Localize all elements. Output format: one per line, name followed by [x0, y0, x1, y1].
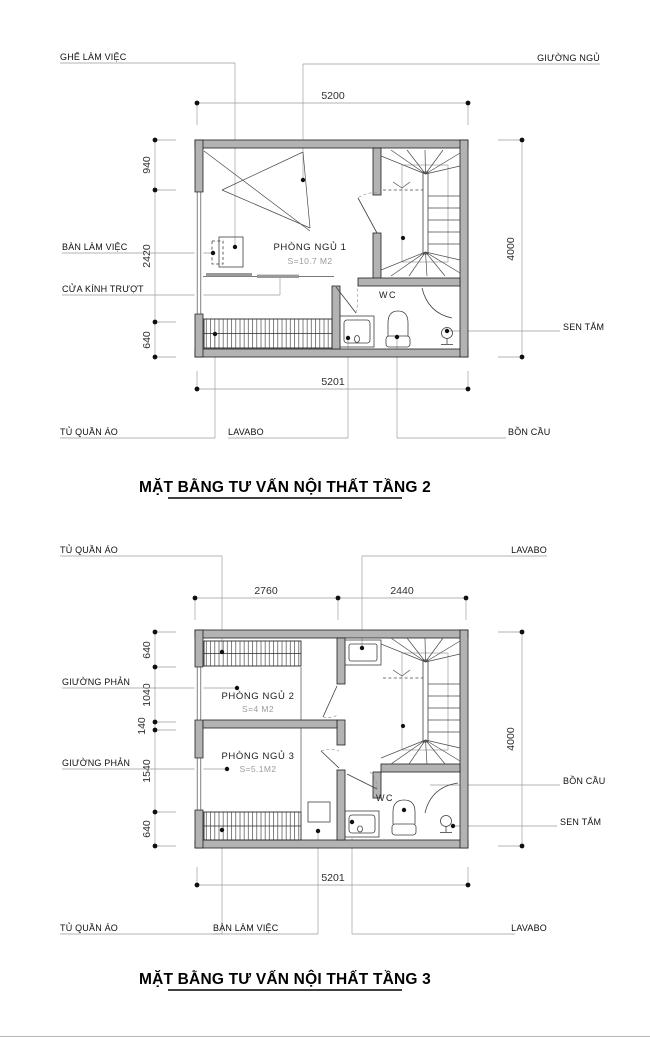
drawing-sheet: GHẾ LÀM VIỆC GIƯỜNG NGỦ 5200 940 2420 64… — [0, 0, 650, 1037]
plan2-dim-640: 640 — [141, 331, 153, 349]
plan3-shower — [440, 816, 452, 833]
plan2-dim-bottom: 5201 — [321, 376, 345, 388]
plan3-title: MẶT BẰNG TƯ VẤN NỘI THẤT TẦNG 3 — [139, 970, 431, 988]
plan3-desk — [308, 802, 330, 822]
plan3-stair — [381, 638, 460, 764]
plan3-window-lower — [195, 758, 204, 810]
plan2-title: MẶT BẰNG TƯ VẤN NỘI THẤT TẦNG 2 — [139, 478, 431, 496]
plan3-title-block: MẶT BẰNG TƯ VẤN NỘI THẤT TẦNG 3 — [139, 970, 431, 990]
plan2-stair-door — [358, 193, 377, 233]
plan3-wc-label: WC — [376, 793, 394, 803]
plan2-sliding-door-label: CỬA KÍNH TRƯỢT — [62, 283, 144, 294]
plan2-dim-top: 5200 — [321, 90, 345, 102]
plan3-bedroom2-name: PHÒNG NGỦ 2 — [221, 690, 294, 702]
plan2-wardrobe-label: TỦ QUẦN ÁO — [60, 426, 118, 437]
plan3-toilet — [392, 800, 416, 835]
plan2-sink-label: LAVABO — [228, 427, 264, 437]
plan3-dim-140: 140 — [136, 717, 148, 735]
plan3-dim-1040: 1040 — [141, 683, 153, 707]
plan3-wc-door — [347, 772, 377, 789]
plan3-bedroom3-name: PHÒNG NGỦ 3 — [221, 750, 294, 762]
plan2-desk-label: BÀN LÀM VIỆC — [62, 242, 128, 252]
plan3-annotations: TỦ QUẦN ÁO LAVABO 2760 2440 640 1040 140… — [60, 544, 605, 934]
plan2-lavabo — [340, 316, 374, 347]
plan3-lavabo-bottom — [345, 811, 379, 837]
plan3-bedroom2-area: S=4 M2 — [242, 704, 274, 714]
plan3-shower-label: SEN TẮM — [560, 817, 601, 827]
plan3-wardrobe-top-label: TỦ QUẦN ÁO — [60, 544, 118, 555]
plan3-window-upper — [195, 667, 204, 720]
plan2-desk — [212, 237, 243, 267]
plan2-wc-label: WC — [379, 290, 397, 300]
plan3-wc-swing-door — [425, 783, 458, 813]
plan3-wardrobe-top — [204, 641, 301, 666]
plan3-bed-lower-label: GIƯỜNG PHẢN — [62, 757, 130, 768]
plan2-dim-right: 4000 — [505, 237, 517, 261]
plan2-shower-label: SEN TẮM — [563, 322, 604, 332]
plan2-toilet-label: BỒN CẦU — [508, 426, 550, 437]
plan2-toilet — [386, 311, 410, 347]
plan3-wardrobe-bottom-label: TỦ QUẦN ÁO — [60, 922, 118, 933]
plan2-dim-2420: 2420 — [141, 244, 153, 268]
plan3-furniture: WC PHÒNG NGỦ 2 S=4 M2 PHÒNG NGỦ 3 S=5.1M… — [204, 640, 458, 840]
plan3-dim-640b: 640 — [141, 820, 153, 838]
plan3-dim-bottom: 5201 — [321, 872, 345, 884]
plan3-bedroom3-door — [321, 750, 339, 769]
plan2-bedroom1-area: S=10.7 M2 — [288, 256, 333, 266]
plan3-desk-label: BÀN LÀM VIỆC — [213, 923, 279, 933]
plan2-dim-940: 940 — [141, 156, 153, 174]
plan2-window — [195, 192, 204, 314]
plan3-dim-1540: 1540 — [141, 759, 153, 783]
plan2-bed-label: GIƯỜNG NGỦ — [537, 52, 600, 63]
plan3-sink-top-label: LAVABO — [511, 545, 547, 555]
plan3-bedroom3-area: S=5.1M2 — [239, 764, 276, 774]
plan3-dim-2760: 2760 — [254, 585, 278, 597]
plan3-bed-upper-label: GIƯỜNG PHẢN — [62, 676, 130, 687]
plan3-dim-640a: 640 — [141, 641, 153, 659]
plan2-wc-swing-door — [422, 288, 452, 318]
plan2-furniture: WC PHÒNG NGỦ 1 S=10.7 M2 — [203, 151, 453, 348]
plan3-toilet-label: BỒN CẦU — [563, 775, 605, 786]
plan2-chair-label: GHẾ LÀM VIỆC — [60, 52, 127, 62]
plan3-wardrobe-bottom — [204, 812, 301, 840]
plan3-sink-bottom-label: LAVABO — [511, 923, 547, 933]
plan2-sliding-door — [203, 273, 334, 278]
plan3-dim-right: 4000 — [505, 727, 517, 751]
plan2-wardrobe — [204, 319, 332, 348]
plan2-stair — [381, 150, 460, 276]
plan3-lavabo-top — [345, 640, 381, 665]
floor-plan-svg: GHẾ LÀM VIỆC GIƯỜNG NGỦ 5200 940 2420 64… — [0, 0, 650, 1036]
plan3-bedroom2-door — [323, 686, 337, 718]
plan2-bedroom1-name: PHÒNG NGỦ 1 — [273, 241, 346, 253]
plan3-dim-2440: 2440 — [390, 585, 414, 597]
plan2-bed — [204, 151, 310, 231]
plan2-title-block: MẶT BẰNG TƯ VẤN NỘI THẤT TẦNG 2 — [139, 478, 431, 498]
